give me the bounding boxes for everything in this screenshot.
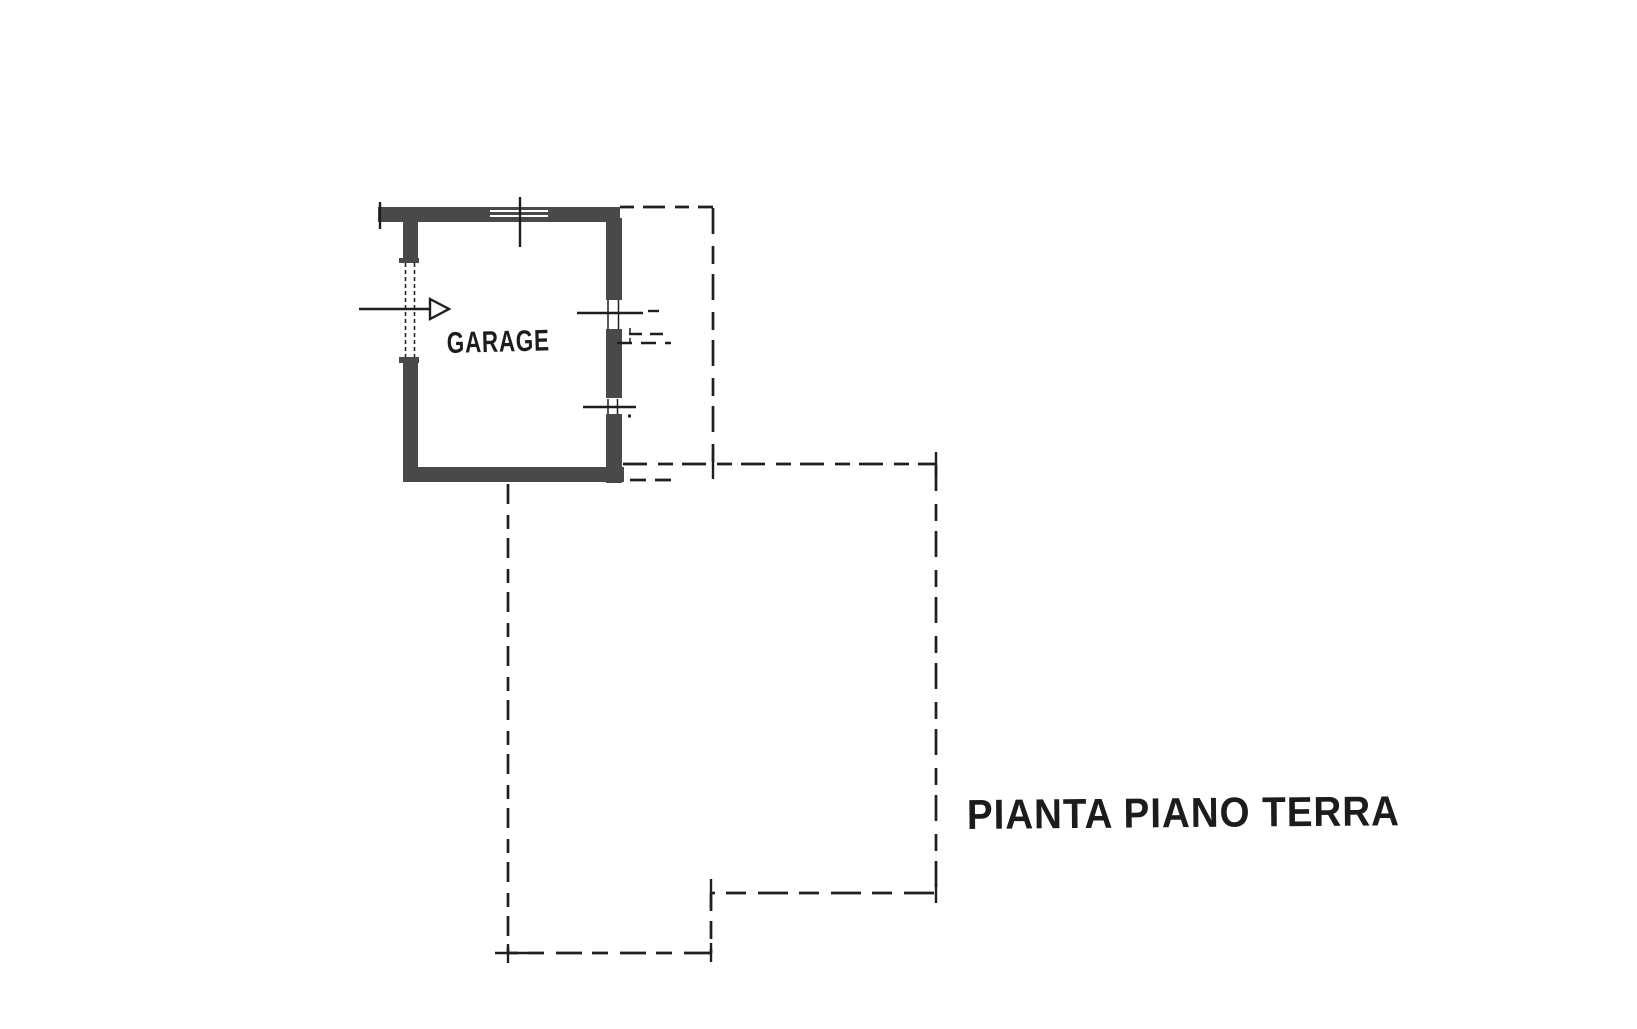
floor-plan-page: GARAGE PIANTA PIANO TERRA [0, 0, 1637, 1029]
floor-plan-canvas: GARAGE PIANTA PIANO TERRA [0, 0, 1637, 1029]
left-window-cap-bottom [399, 357, 419, 363]
garage-right-wall-upper [606, 218, 622, 300]
garage-bottom-wall [403, 467, 624, 482]
entrance-arrow-icon [359, 299, 449, 319]
reference-ticks [359, 197, 936, 963]
garage-right-wall-middle [606, 329, 622, 398]
garage-right-wall-lower [606, 414, 622, 483]
building-outline-dashed [508, 207, 936, 953]
left-window-cap-top [399, 258, 419, 263]
garage-room-label: GARAGE [446, 324, 550, 360]
entrance-arrow-head [430, 299, 449, 319]
plan-caption: PIANTA PIANO TERRA [967, 787, 1400, 838]
garage-top-wall [378, 207, 620, 222]
garage-left-wall-lower [403, 358, 418, 482]
garage-left-wall-upper [403, 222, 418, 260]
